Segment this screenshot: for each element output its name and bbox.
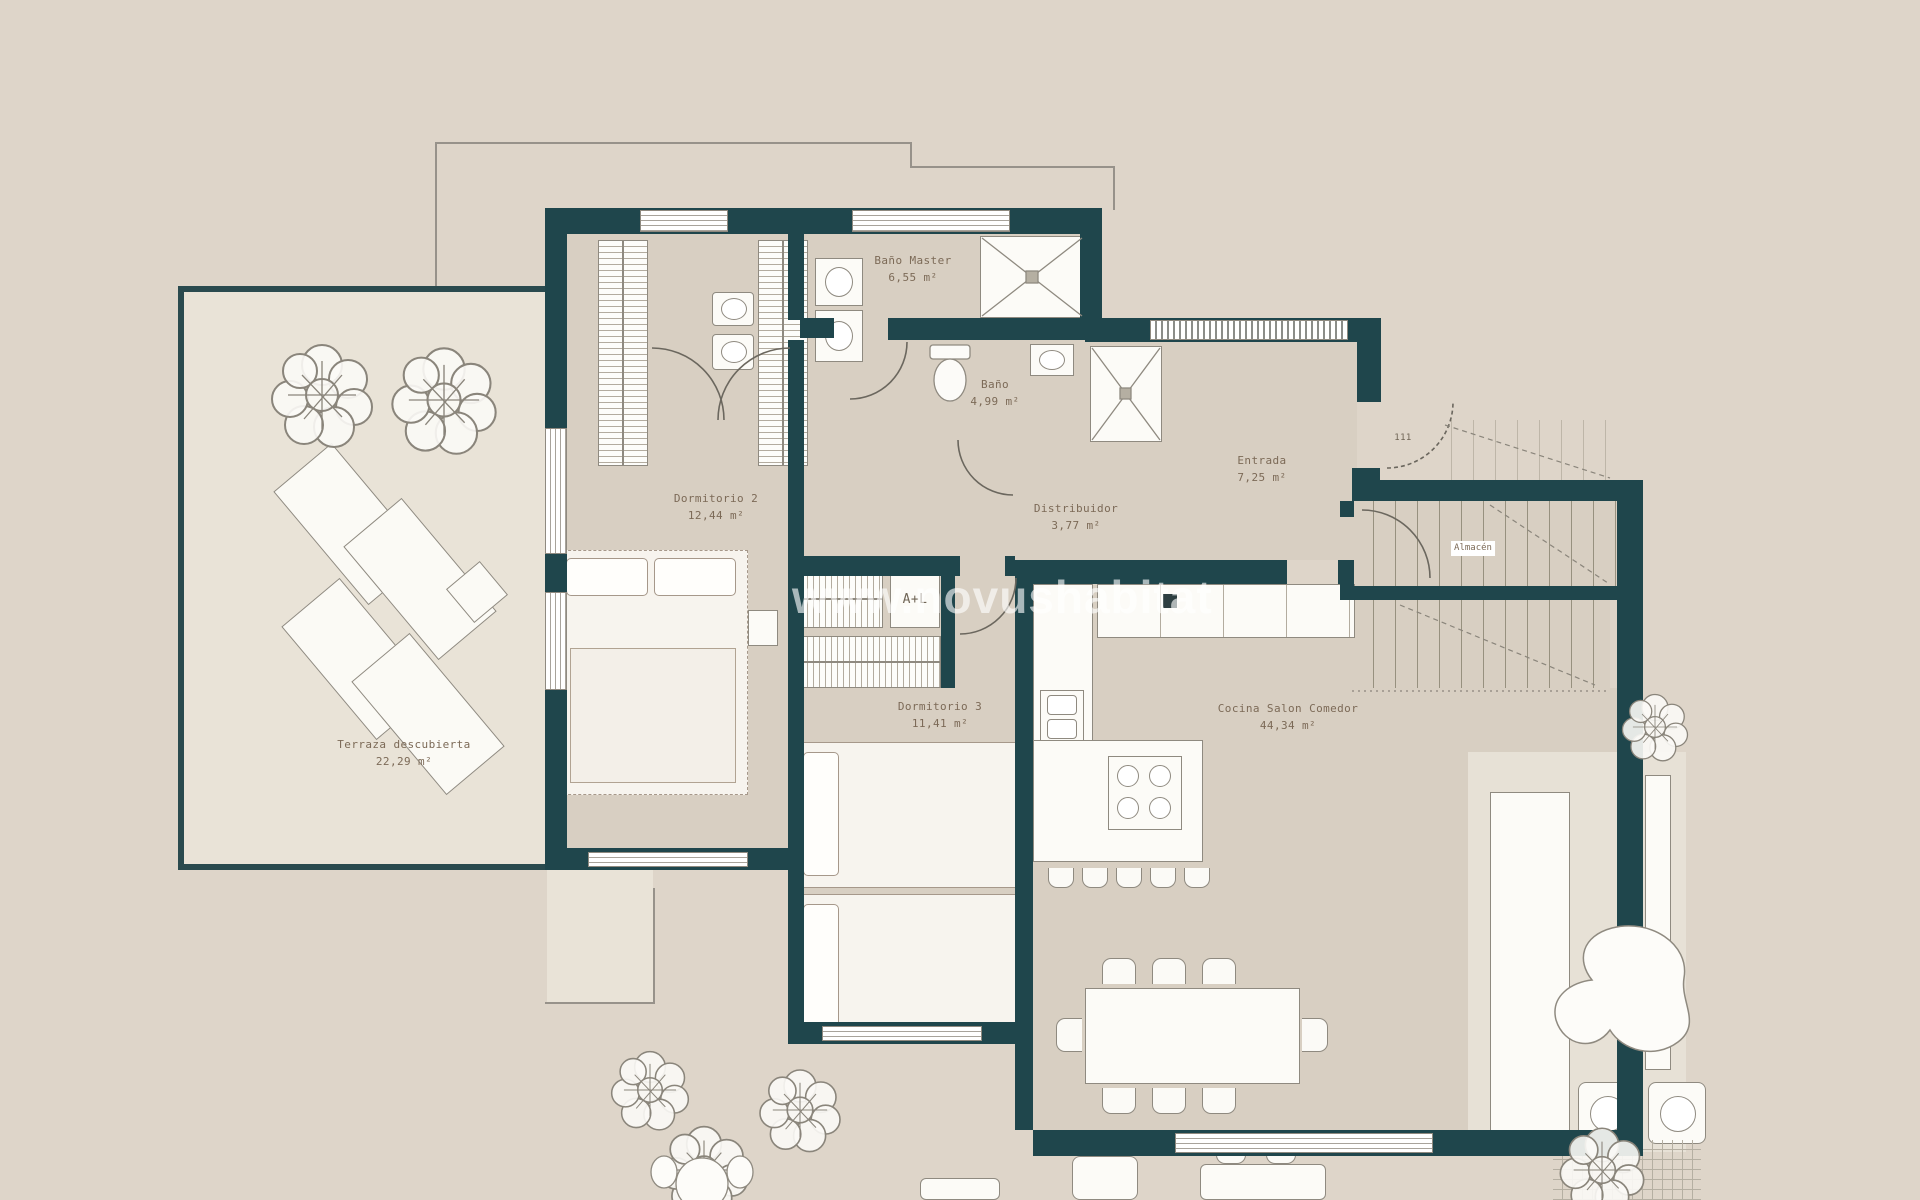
bar-stool: [1082, 868, 1108, 888]
outdoor-table: [1200, 1164, 1326, 1200]
window-top-2: [852, 210, 1010, 232]
room-area: 3,77 m²: [1034, 517, 1118, 534]
roof-outline-step-h: [910, 166, 1115, 168]
terrace-wall-left: [178, 286, 184, 870]
bar-stool: [1184, 868, 1210, 888]
shower-bath2: [1090, 346, 1162, 442]
bed-dorm2-pillow-left: [566, 558, 648, 596]
media-console: [1645, 775, 1671, 1070]
room-name: Dormitorio 2: [674, 490, 758, 507]
stair-treads-landing: [1430, 420, 1617, 480]
patio-floor: [547, 870, 653, 1003]
label-almacen: Almacén: [1451, 541, 1495, 556]
patio-line-right: [653, 888, 655, 1003]
dining-chair: [1152, 958, 1186, 984]
label-cocina-salon: Cocina Salon Comedor 44,34 m²: [1218, 700, 1358, 734]
label-terraza: Terraza descubierta 22,29 m²: [337, 736, 470, 770]
toilet-master: [712, 292, 754, 326]
wall-stair-left-a: [1340, 501, 1354, 517]
kitchen-sink: [1040, 690, 1084, 744]
sink-master-1: [815, 258, 863, 306]
stair-treads-lower: [1352, 600, 1610, 688]
roof-outline-step-v: [910, 142, 912, 168]
room-area: 22,29 m²: [337, 753, 470, 770]
label-door-number: 111: [1394, 432, 1411, 446]
door-number-text: 111: [1394, 432, 1411, 446]
label-bano-master: Baño Master 6,55 m²: [874, 252, 951, 286]
window-left-1: [545, 428, 567, 554]
room-name: Distribuidor: [1034, 500, 1118, 517]
watermark: www.novushabitat: [792, 570, 1213, 624]
wall-corridor: [788, 340, 804, 1022]
plant-patio-2: [661, 1127, 748, 1200]
wall-entry-upper: [1357, 342, 1381, 402]
window-entrada: [1150, 320, 1348, 340]
dining-chair: [1152, 1088, 1186, 1114]
room-name: Terraza descubierta: [337, 736, 470, 753]
terrace-wall-bottom: [178, 864, 550, 870]
window-living-bottom: [1175, 1133, 1433, 1153]
armchair: [1648, 1082, 1706, 1144]
outdoor-bench: [920, 1178, 1000, 1200]
room-area: 44,34 m²: [1218, 717, 1358, 734]
dining-chair: [1102, 1088, 1136, 1114]
sink-bath2: [1030, 344, 1074, 376]
plant-patio-3: [760, 1070, 840, 1152]
room-area: 11,41 m²: [898, 715, 982, 732]
room-area: 4,99 m²: [970, 393, 1019, 410]
dining-chair: [1102, 958, 1136, 984]
label-distribuidor: Distribuidor 3,77 m²: [1034, 500, 1118, 534]
wall-living-left: [1015, 584, 1033, 1130]
room-name: Baño: [970, 376, 1019, 393]
window-top-1: [640, 210, 728, 232]
plant-patio-1: [612, 1052, 689, 1130]
wall-bath-split-a: [800, 318, 834, 338]
terrace-wall-top: [178, 286, 548, 292]
dining-chair: [1202, 958, 1236, 984]
wall-master-bath: [788, 234, 804, 320]
wall-top: [545, 208, 1102, 234]
bidet-master: [712, 334, 754, 370]
roof-outline-left: [435, 142, 437, 288]
room-area: 12,44 m²: [674, 507, 758, 524]
wall-stair-top: [1352, 480, 1617, 501]
window-left-2: [545, 592, 567, 690]
room-name: Cocina Salon Comedor: [1218, 700, 1358, 717]
dining-table: [1085, 988, 1300, 1084]
bed-dorm3-a-pillow: [803, 752, 839, 876]
wall-right: [1617, 480, 1643, 1156]
label-dormitorio3: Dormitorio 3 11,41 m²: [898, 698, 982, 732]
cooktop: [1108, 756, 1182, 830]
label-entrada: Entrada 7,25 m²: [1237, 452, 1286, 486]
wardrobe-rail-left: [598, 240, 648, 466]
closet-dorm3-low: [795, 636, 941, 688]
window-dorm3-bottom: [822, 1026, 982, 1041]
dining-chair: [1056, 1018, 1082, 1052]
roof-outline-top: [435, 142, 912, 144]
sofa: [1490, 792, 1570, 1140]
bed-dorm2-duvet: [570, 648, 736, 783]
bed-dorm3-b-pillow: [803, 904, 839, 1028]
dining-chair: [1302, 1018, 1328, 1052]
room-name: Almacén: [1454, 543, 1492, 553]
roof-outline-right: [1113, 166, 1115, 210]
bar-stool: [1150, 868, 1176, 888]
wall-topright-corner: [1080, 234, 1102, 320]
bar-stool: [1116, 868, 1142, 888]
floor-plan: Baño Master 6,55 m² Baño 4,99 m² Dormito…: [0, 0, 1920, 1200]
outdoor-round-table: [651, 1156, 753, 1200]
window-dorm2-bottom: [588, 852, 748, 867]
wall-living-top-b: [1338, 560, 1354, 584]
room-name: Entrada: [1237, 452, 1286, 469]
room-name: Baño Master: [874, 252, 951, 269]
wall-stair-mid: [1352, 586, 1617, 600]
room-area: 7,25 m²: [1237, 469, 1286, 486]
room-name: Dormitorio 3: [898, 698, 982, 715]
outdoor-seat: [1072, 1156, 1138, 1200]
label-bano: Baño 4,99 m²: [970, 376, 1019, 410]
label-dormitorio2: Dormitorio 2 12,44 m²: [674, 490, 758, 524]
shower-master: [980, 236, 1084, 318]
bed-dorm2-pillow-right: [654, 558, 736, 596]
bar-stool: [1048, 868, 1074, 888]
nightstand-dorm2: [748, 610, 778, 646]
dining-chair: [1202, 1088, 1236, 1114]
room-area: 6,55 m²: [874, 269, 951, 286]
patio-line-bottom: [545, 1002, 655, 1004]
